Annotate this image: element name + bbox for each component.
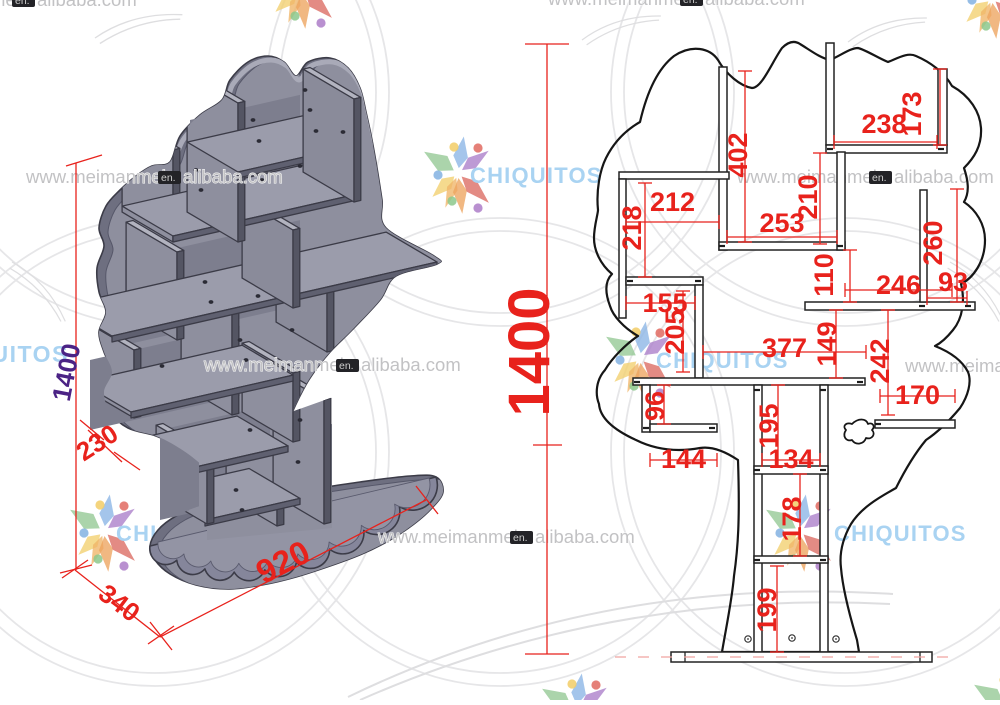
svg-text:170: 170: [895, 380, 940, 410]
svg-text:alibaba.com: alibaba.com: [705, 0, 805, 9]
svg-text:www.meimanmei: www.meimanmei: [203, 354, 344, 375]
svg-text:377: 377: [762, 333, 807, 363]
svg-text:246: 246: [876, 270, 921, 300]
svg-text:173: 173: [897, 91, 927, 136]
svg-text:149: 149: [812, 321, 842, 366]
svg-text:210: 210: [793, 174, 823, 219]
svg-text:alibaba.com: alibaba.com: [37, 0, 137, 10]
svg-text:en.: en.: [161, 172, 176, 184]
svg-text:110: 110: [809, 253, 839, 297]
svg-text:199: 199: [752, 587, 782, 632]
svg-text:195: 195: [754, 403, 784, 448]
svg-text:en.: en.: [513, 532, 528, 544]
svg-text:www.meimanmei: www.meimanmei: [377, 526, 518, 547]
svg-text:CHIQUITOS: CHIQUITOS: [834, 521, 967, 546]
svg-text:205: 205: [660, 309, 690, 354]
svg-text:www.meimanmei: www.meimanmei: [547, 0, 688, 9]
svg-text:1400: 1400: [497, 287, 562, 416]
svg-text:CHIQUITOS: CHIQUITOS: [470, 163, 603, 188]
svg-text:218: 218: [617, 205, 647, 250]
svg-text:260: 260: [918, 220, 948, 265]
svg-text:93: 93: [938, 267, 968, 297]
svg-text:alibaba.com: alibaba.com: [361, 354, 461, 375]
svg-text:en.: en.: [872, 172, 887, 184]
svg-text:178: 178: [777, 496, 807, 541]
svg-text:en.: en.: [15, 0, 30, 7]
svg-text:212: 212: [650, 187, 695, 217]
svg-text:en.: en.: [683, 0, 698, 6]
svg-text:402: 402: [723, 132, 753, 177]
svg-text:www.meimanmei: www.meimanmei: [904, 355, 1000, 376]
svg-text:www.meimanmei: www.meimanmei: [25, 166, 166, 187]
svg-text:242: 242: [865, 338, 895, 383]
svg-text:96: 96: [640, 391, 670, 421]
svg-text:alibaba.com: alibaba.com: [894, 166, 994, 187]
svg-text:en.: en.: [339, 360, 354, 372]
svg-text:144: 144: [661, 444, 706, 474]
svg-text:alibaba.com: alibaba.com: [535, 526, 635, 547]
svg-text:134: 134: [768, 444, 813, 474]
svg-text:alibaba.com: alibaba.com: [183, 166, 283, 187]
